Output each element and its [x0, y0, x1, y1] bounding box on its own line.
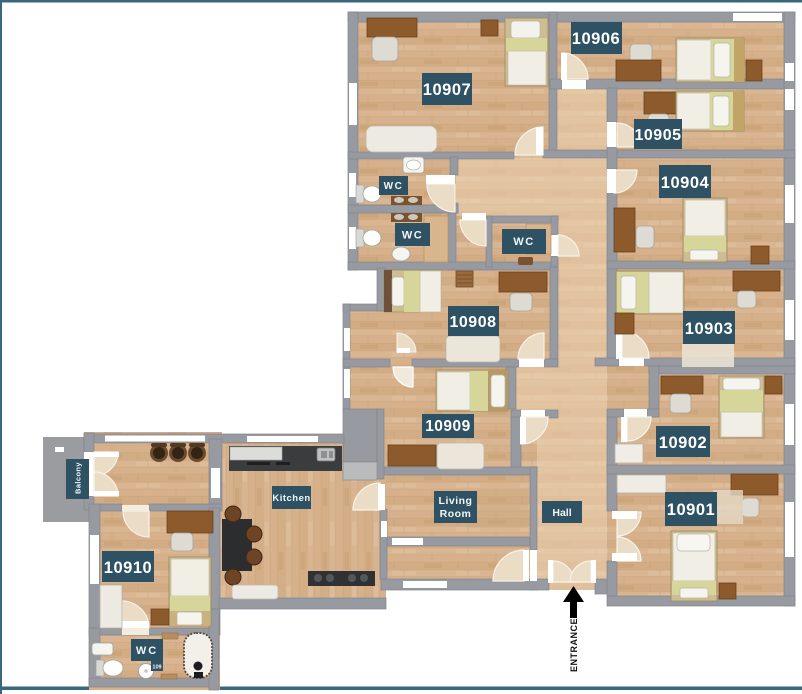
svg-text:109: 109: [152, 665, 161, 671]
svg-text:Kitchen: Kitchen: [272, 493, 310, 504]
svg-text:ENTRANCE: ENTRANCE: [569, 618, 579, 672]
svg-text:10904: 10904: [661, 174, 710, 192]
svg-text:10909: 10909: [425, 418, 471, 435]
svg-text:10902: 10902: [659, 434, 707, 452]
svg-text:10905: 10905: [635, 127, 682, 144]
svg-text:WC: WC: [402, 230, 423, 242]
svg-text:10903: 10903: [685, 320, 733, 338]
svg-text:WC: WC: [136, 645, 158, 657]
svg-text:Room: Room: [440, 508, 472, 520]
svg-text:10907: 10907: [423, 81, 471, 99]
svg-text:Balcony: Balcony: [74, 462, 83, 494]
svg-text:10901: 10901: [667, 501, 715, 519]
svg-text:10906: 10906: [572, 30, 620, 48]
svg-text:WC: WC: [513, 236, 534, 248]
svg-text:Hall: Hall: [552, 507, 571, 519]
svg-text:WC: WC: [384, 181, 404, 192]
svg-text:Living: Living: [439, 495, 473, 507]
svg-text:10910: 10910: [104, 559, 152, 577]
svg-text:10908: 10908: [450, 314, 497, 331]
